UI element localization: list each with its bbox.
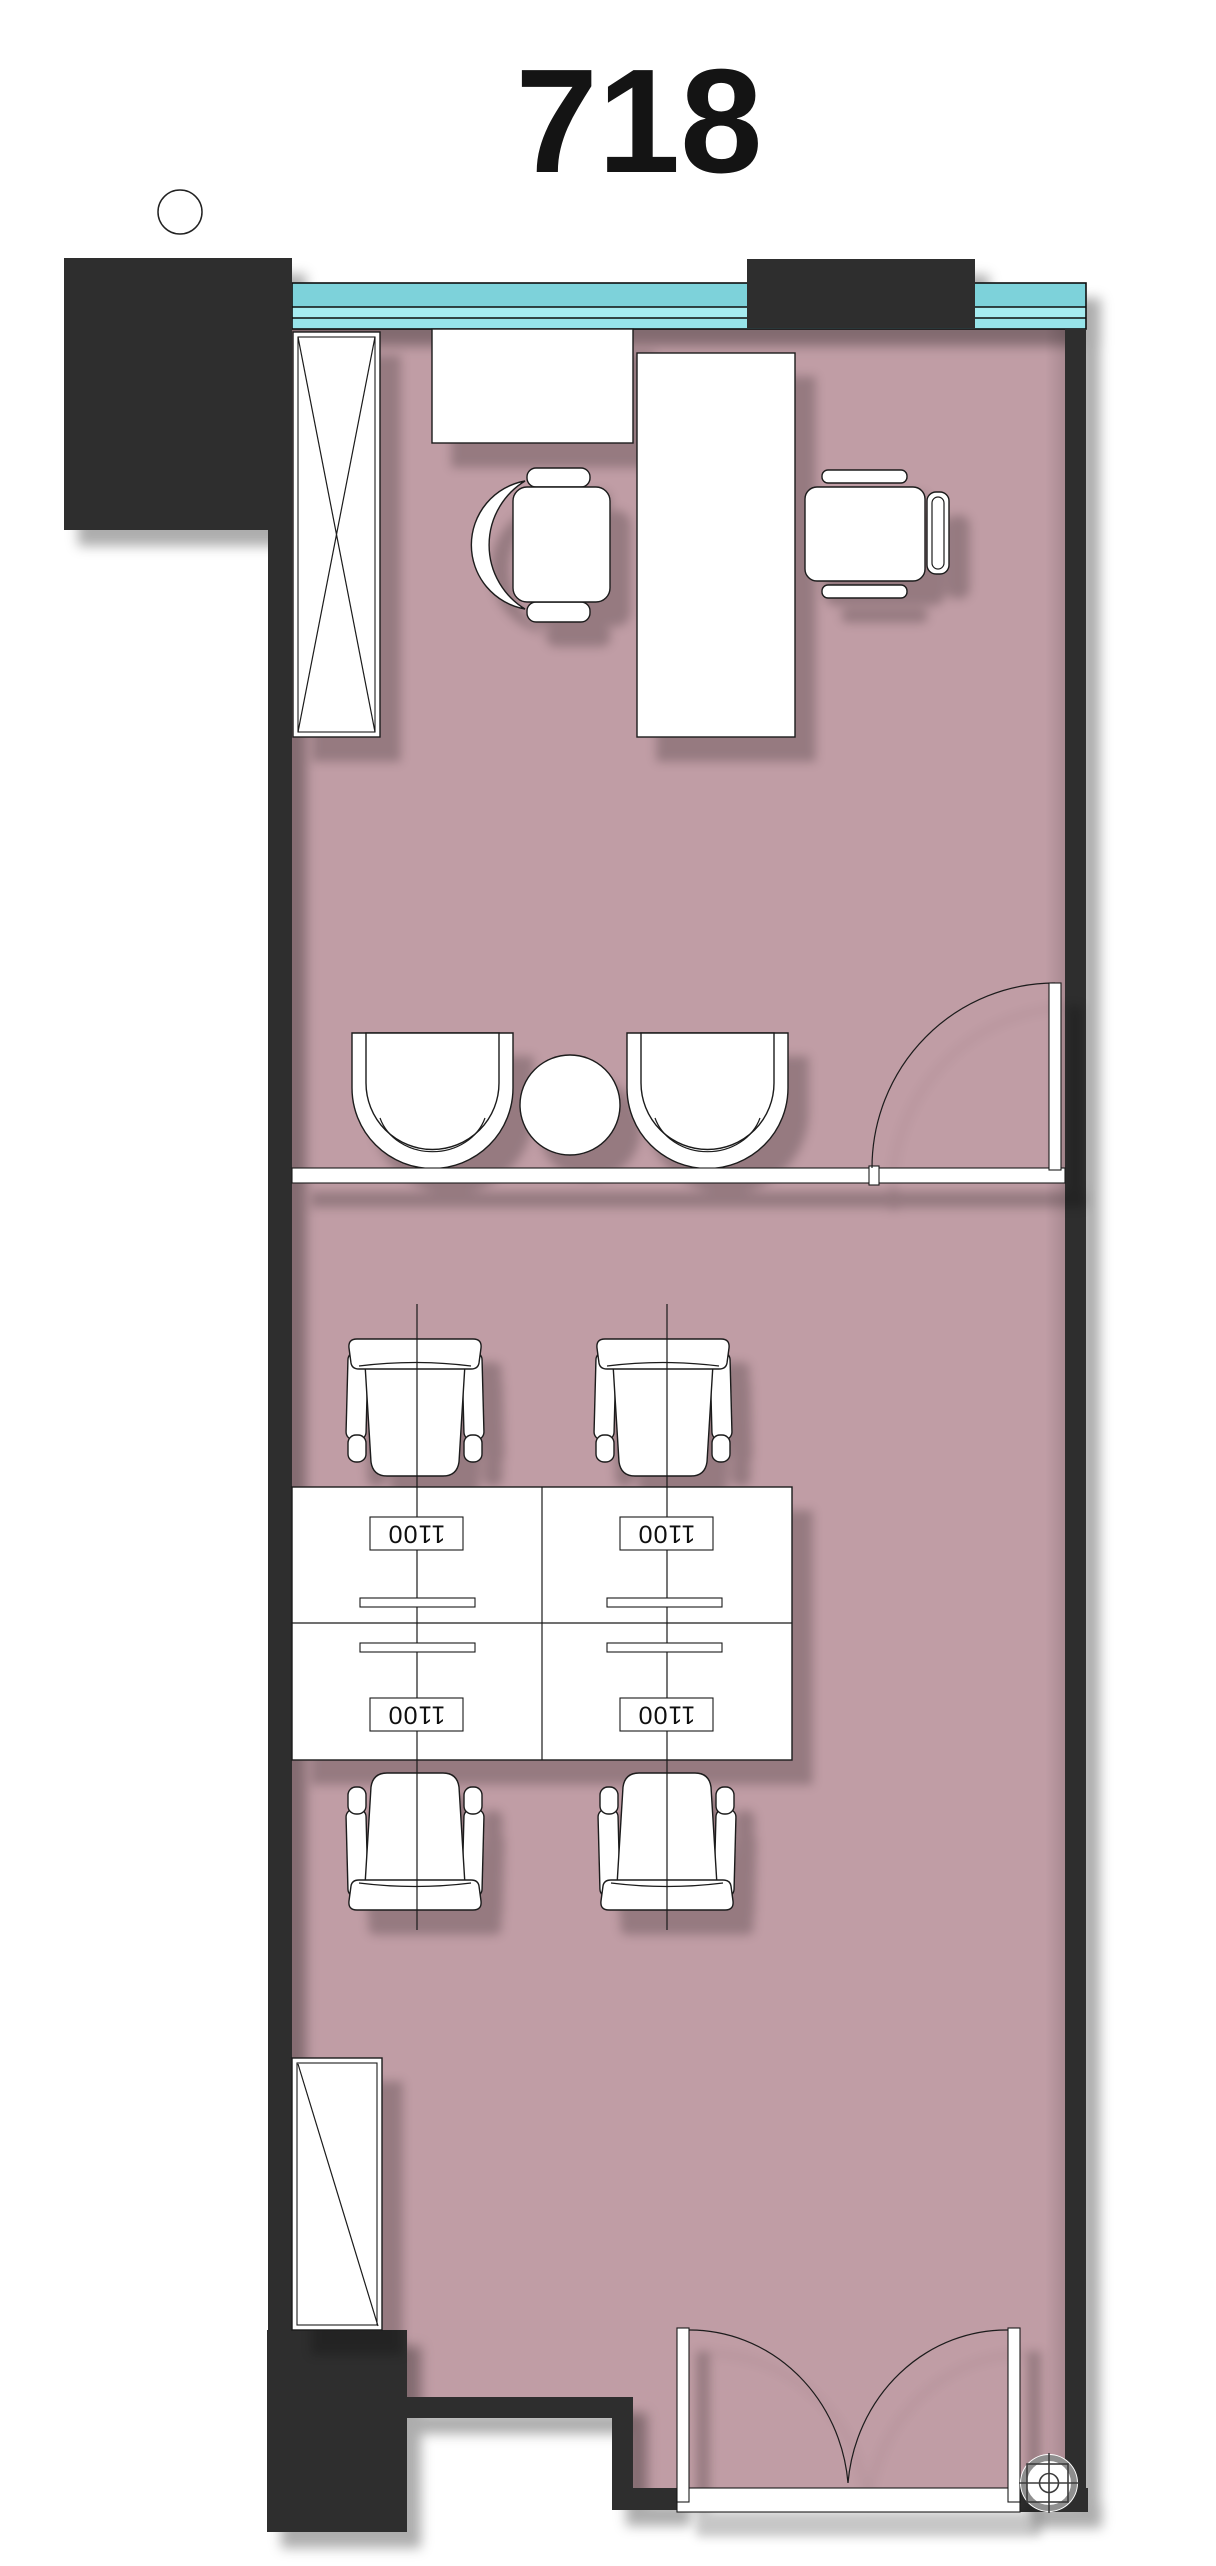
desk-dimension-label: 1100	[388, 1520, 446, 1548]
wall-bottom-step-c	[633, 2488, 677, 2510]
workstation-desk-cluster	[292, 1487, 792, 1760]
floor-plan-drawing: 1100 1100 1100 1100	[0, 0, 1216, 2566]
partition-door-jamb	[869, 1166, 879, 1185]
wall-left	[268, 530, 292, 2330]
wall-top-left-block	[64, 258, 292, 530]
wall-right	[1065, 329, 1086, 2512]
door-threshold	[677, 2488, 1020, 2512]
chair-seat	[805, 487, 925, 581]
desk-dimension-label: 1100	[638, 1701, 696, 1729]
chair-backrest	[927, 492, 949, 574]
wall-top-middle-block	[747, 259, 975, 328]
floor-shading-right	[1045, 329, 1065, 2488]
desk-slot	[360, 1598, 475, 1607]
partition-door-leaf	[1049, 983, 1061, 1170]
chair-armrest	[822, 470, 907, 483]
room-number-title: 718	[139, 44, 1139, 199]
desk-slot	[607, 1643, 722, 1652]
floor-plan-page: 1100 1100 1100 1100 718	[0, 0, 1216, 2566]
chair-seat	[513, 487, 610, 602]
wall-bottom-step-b	[612, 2397, 633, 2510]
round-side-table	[520, 1055, 620, 1155]
chair-armrest	[822, 585, 907, 598]
partition-band	[292, 1168, 1065, 1183]
storage-cabinet-top	[293, 332, 380, 737]
desk-dimension-label: 1100	[388, 1701, 446, 1729]
wall-bottom-left-block	[267, 2330, 407, 2532]
door-leaf-left	[677, 2328, 689, 2502]
door-leaf-right	[1008, 2328, 1020, 2502]
desk-dimension-label: 1100	[638, 1520, 696, 1548]
desk-slot	[360, 1643, 475, 1652]
executive-desk	[637, 353, 795, 737]
storage-cabinet-bottom	[292, 2058, 382, 2330]
chair-armrest	[527, 602, 590, 622]
credenza-desk	[432, 329, 633, 443]
wall-bottom-step-a	[407, 2397, 612, 2418]
desk-slot	[607, 1598, 722, 1607]
chair-armrest	[527, 468, 590, 487]
